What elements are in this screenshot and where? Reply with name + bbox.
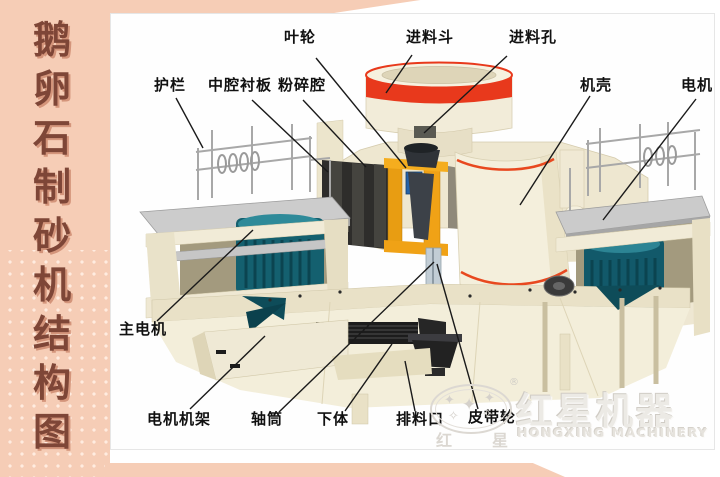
frame-top-strip	[110, 0, 430, 13]
part-label-feed-port: 进料孔	[509, 29, 557, 45]
part-label-feed-hopper: 进料斗	[406, 29, 454, 45]
guardrail-left-graphic	[196, 124, 330, 205]
title-char: 制	[0, 163, 104, 212]
part-label-motor-frame: 电机机架	[147, 411, 211, 427]
title-char: 构	[0, 359, 104, 408]
title-char: 石	[0, 114, 104, 163]
part-label-motor: 电机	[681, 77, 713, 93]
seal-char-right: 星	[492, 427, 508, 451]
leader-guardrail	[176, 98, 203, 148]
title-char: 卵	[0, 65, 104, 114]
star-icon: ✦	[484, 392, 495, 405]
page-title: 鹅 卵 石 制 砂 机 结 构 图	[0, 16, 104, 457]
part-label-impeller: 叶轮	[284, 29, 316, 45]
part-label-middle-chamber-liner: 中腔衬板	[208, 77, 272, 93]
structure-diagram: 鹅 卵 石 制 砂 机 结 构 图	[0, 0, 720, 477]
title-char: 结	[0, 310, 104, 359]
frame-bottom-strip	[105, 463, 565, 477]
part-label-shaft-cylinder: 轴筒	[251, 411, 283, 427]
brand-name-en: HONGXING MACHINERY	[517, 425, 709, 440]
sidebar-background: 鹅 卵 石 制 砂 机 结 构 图	[0, 0, 110, 477]
star-icon: ✧	[448, 410, 459, 423]
title-char: 砂	[0, 212, 104, 261]
part-label-lower-body: 下体	[317, 411, 349, 427]
star-icon: ✦	[462, 399, 476, 412]
part-label-crushing-chamber: 粉碎腔	[278, 77, 326, 93]
star-icon: ✦	[444, 394, 455, 407]
title-char: 鹅	[0, 16, 104, 65]
part-label-casing: 机壳	[580, 77, 612, 93]
seal-char-left: 红	[436, 427, 452, 451]
star-icon: ✧	[482, 408, 493, 421]
part-label-guardrail: 护栏	[154, 77, 186, 93]
part-label-main-motor: 主电机	[119, 321, 167, 337]
title-char: 机	[0, 261, 104, 310]
title-char: 图	[0, 408, 104, 457]
